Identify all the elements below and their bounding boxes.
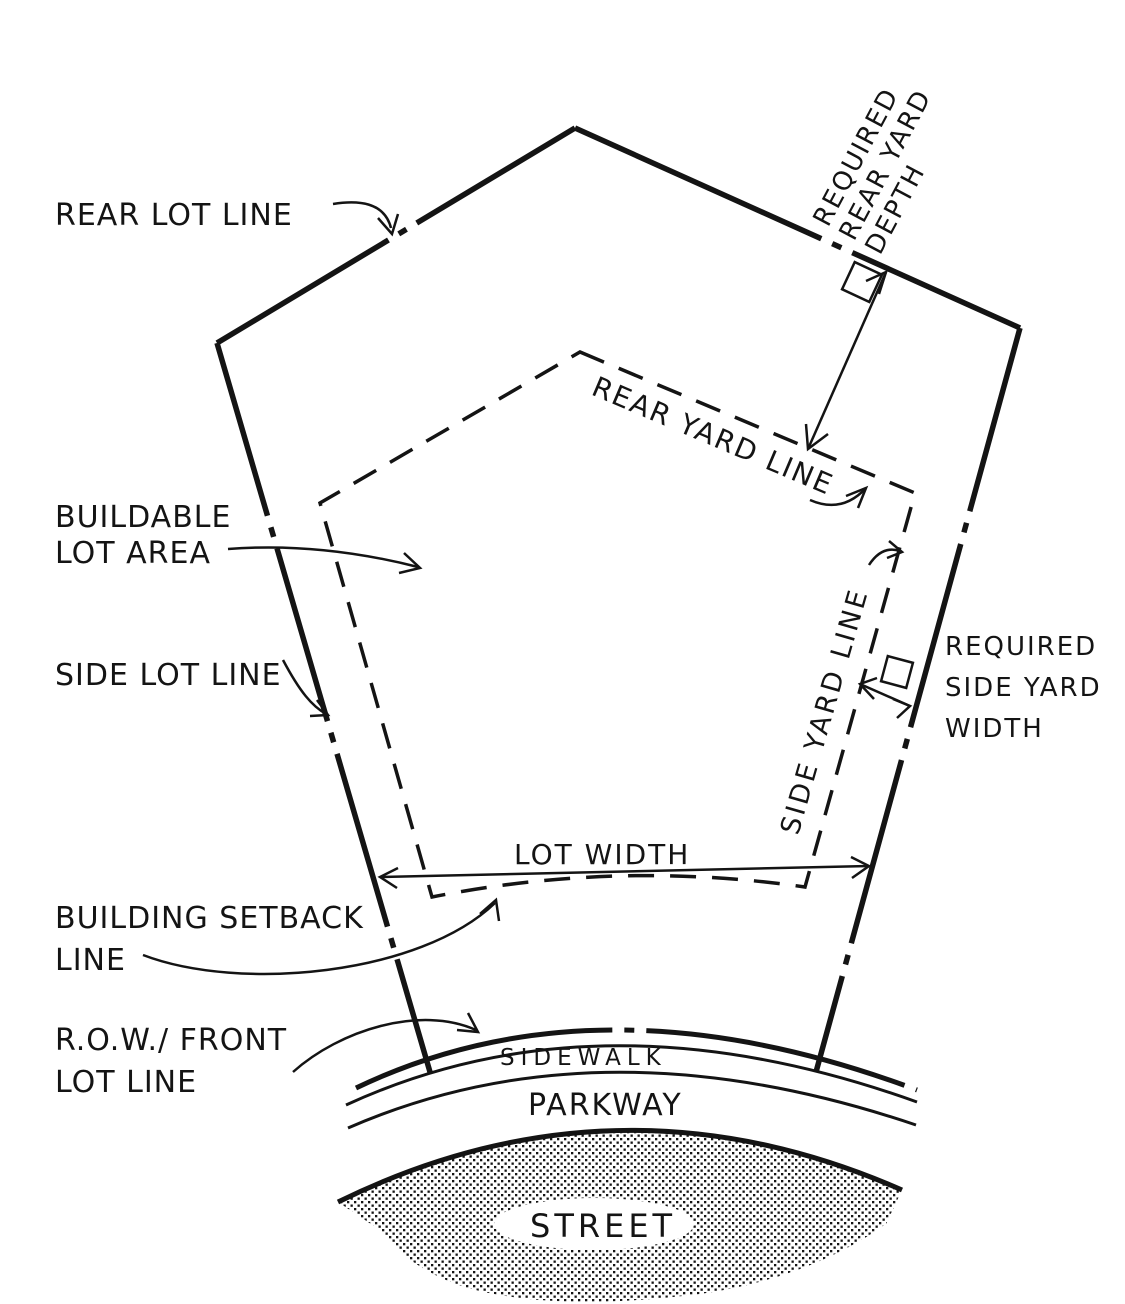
rear-lot-line-left <box>217 128 575 343</box>
rear-yard-depth-line <box>808 272 886 449</box>
rear-yard-line-label: REAR YARD LINE <box>587 370 838 502</box>
buildable-area-leader <box>228 547 418 567</box>
buildable-lot-area-line2: LOT AREA <box>55 536 211 571</box>
buildable-area-outline <box>320 352 915 897</box>
row-front-lot-line2: LOT LINE <box>55 1065 197 1100</box>
side-lot-line-label: SIDE LOT LINE <box>55 658 282 693</box>
building-setback-line2: LINE <box>55 943 126 978</box>
required-rear-yard-depth-label: REQUIRED REAR YARD DEPTH <box>808 83 939 259</box>
rear-yard-depth-dimension <box>806 262 886 449</box>
side-yard-width-arrowhead-right <box>893 699 910 718</box>
parkway-label: PARKWAY <box>528 1088 683 1123</box>
row-front-lot-line-label: R.O.W./ FRONT LOT LINE <box>55 1023 287 1100</box>
street-label: STREET <box>530 1207 676 1245</box>
sidewalk-label: SIDEWALK <box>500 1045 667 1071</box>
rear-lot-line-leader-arrowhead <box>378 214 398 234</box>
rear-lot-line-label: REAR LOT LINE <box>55 198 293 233</box>
required-side-yard-width-line3: WIDTH <box>945 714 1044 744</box>
buildable-lot-area-label: BUILDABLE LOT AREA <box>55 500 231 571</box>
building-setback-line1: BUILDING SETBACK <box>55 901 364 936</box>
buildable-lot-area-line1: BUILDABLE <box>55 500 231 535</box>
required-side-yard-width-line2: SIDE YARD <box>945 673 1102 703</box>
right-angle-marker-side <box>881 656 913 688</box>
building-setback-line-label: BUILDING SETBACK LINE <box>55 901 364 978</box>
side-yard-line-label: SIDE YARD LINE <box>775 584 875 837</box>
side-yard-width-dimension <box>860 656 913 718</box>
row-front-lot-line1: R.O.W./ FRONT <box>55 1023 287 1058</box>
required-side-yard-width-label: REQUIRED SIDE YARD WIDTH <box>945 632 1102 744</box>
required-side-yard-width-line1: REQUIRED <box>945 632 1097 662</box>
row-front-lot-leader <box>293 1020 476 1072</box>
building-setback-leader-arrowhead <box>480 900 499 921</box>
site-plan-diagram: REAR LOT LINE REQUIRED REAR YARD DEPTH R… <box>0 0 1125 1304</box>
leader-arrows <box>143 202 902 1072</box>
lot-width-label: LOT WIDTH <box>514 838 690 871</box>
rear-lot-line-right <box>575 128 1020 328</box>
